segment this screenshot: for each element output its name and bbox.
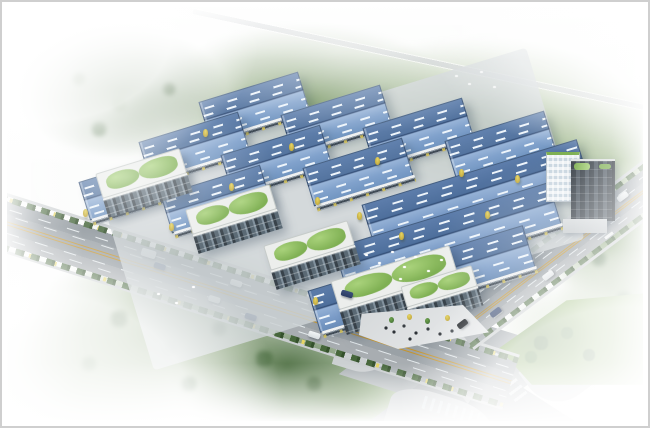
bird (378, 262, 381, 264)
bird (455, 75, 458, 77)
yellow-tree (375, 157, 380, 165)
bird (365, 254, 368, 256)
bird (399, 278, 402, 280)
yellow-tree (313, 297, 318, 305)
yellow-tree (315, 197, 320, 205)
plaza-tree (425, 318, 430, 324)
white-car (616, 191, 629, 203)
yellow-tree (83, 209, 88, 217)
bird (440, 259, 443, 261)
aerial-rendering-scene (7, 7, 643, 421)
tower-podium (563, 219, 607, 233)
photo-frame (0, 0, 650, 428)
bird (468, 83, 471, 85)
bird (175, 302, 178, 304)
yellow-tree (485, 211, 490, 219)
bird (391, 251, 394, 253)
bird (192, 286, 195, 288)
plaza-tree (407, 314, 412, 320)
yellow-tree (289, 143, 294, 151)
yellow-tree (459, 169, 464, 177)
yellow-tree (515, 175, 520, 183)
bird (414, 256, 417, 258)
bird (403, 266, 406, 268)
tree-clumps (7, 7, 11, 11)
bird (427, 270, 430, 272)
plaza-tree (445, 315, 450, 321)
dark-office-tower (571, 159, 615, 221)
yellow-tree (399, 232, 404, 240)
bird (493, 86, 496, 88)
white-car (308, 330, 321, 339)
yellow-tree (357, 212, 362, 220)
yellow-tree (203, 129, 208, 137)
yellow-tree (169, 223, 174, 231)
dark-car (489, 306, 502, 318)
yellow-tree (229, 183, 234, 191)
plaza-tree (389, 317, 394, 323)
bird (480, 71, 483, 73)
white-car (541, 269, 554, 281)
bird (157, 293, 160, 295)
